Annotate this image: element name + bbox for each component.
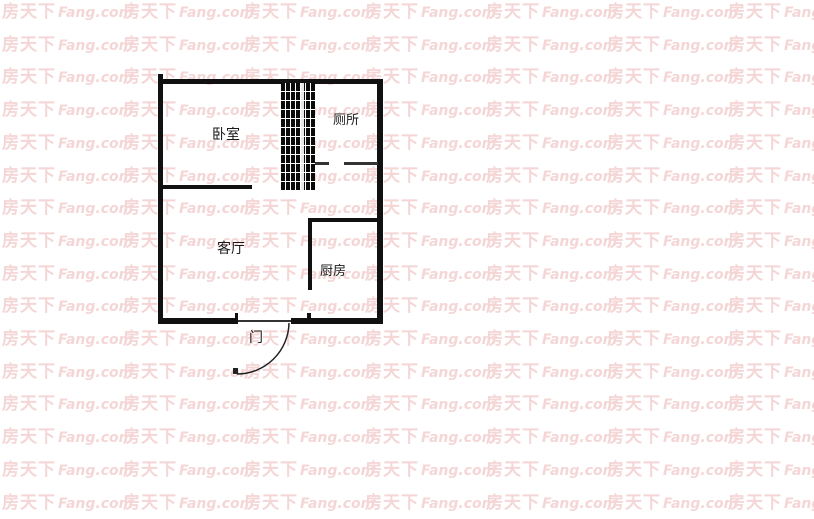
floorplan-drawing: 卧室 厕所 客厅 厨房 门 [0,0,814,519]
entry-door-swing-arc [0,0,814,519]
floorplan-image: 房天下Fang.com房天下Fang.com房天下Fang.com房天下Fang… [0,0,814,519]
